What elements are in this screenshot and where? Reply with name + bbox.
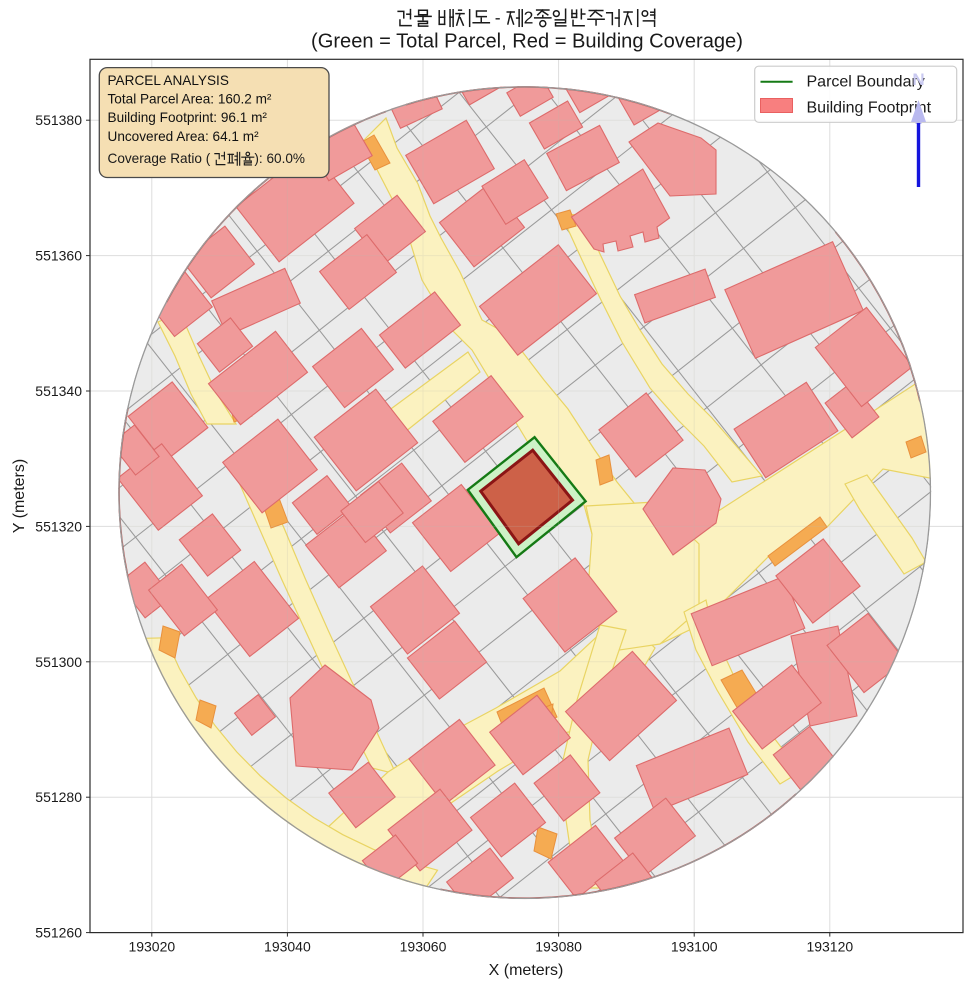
svg-text:-: - bbox=[490, 8, 506, 28]
svg-text:Coverage Ratio (: Coverage Ratio ( bbox=[108, 151, 211, 166]
svg-text:193100: 193100 bbox=[671, 939, 718, 955]
svg-text:PARCEL ANALYSIS: PARCEL ANALYSIS bbox=[108, 73, 229, 88]
svg-text:Building Footprint: 96.1 m²: Building Footprint: 96.1 m² bbox=[108, 110, 268, 125]
svg-text:): 60.0%: ): 60.0% bbox=[254, 151, 305, 166]
svg-text:N: N bbox=[912, 70, 924, 89]
svg-text:551380: 551380 bbox=[35, 112, 82, 128]
svg-text:Uncovered Area: 64.1 m²: Uncovered Area: 64.1 m² bbox=[108, 129, 260, 144]
svg-text:551320: 551320 bbox=[35, 518, 82, 534]
svg-text:193120: 193120 bbox=[806, 939, 853, 955]
svg-text:551280: 551280 bbox=[35, 789, 82, 805]
svg-text:193020: 193020 bbox=[128, 939, 175, 955]
svg-text:551260: 551260 bbox=[35, 925, 82, 941]
svg-text:193080: 193080 bbox=[535, 939, 582, 955]
svg-text:193060: 193060 bbox=[400, 939, 447, 955]
svg-text:(Green = Total Parcel, Red = B: (Green = Total Parcel, Red = Building Co… bbox=[311, 31, 743, 53]
svg-text:193040: 193040 bbox=[264, 939, 311, 955]
svg-text:X (meters): X (meters) bbox=[489, 962, 564, 979]
svg-text:551300: 551300 bbox=[35, 654, 82, 670]
svg-text:Building Footprint: Building Footprint bbox=[807, 100, 932, 117]
svg-text:Total Parcel Area: 160.2 m²: Total Parcel Area: 160.2 m² bbox=[108, 92, 272, 107]
svg-text:551340: 551340 bbox=[35, 383, 82, 399]
svg-text:Y (meters): Y (meters) bbox=[11, 459, 28, 533]
svg-text:551360: 551360 bbox=[35, 248, 82, 264]
svg-text:2: 2 bbox=[524, 8, 534, 28]
svg-text:Parcel Boundary: Parcel Boundary bbox=[807, 74, 925, 91]
